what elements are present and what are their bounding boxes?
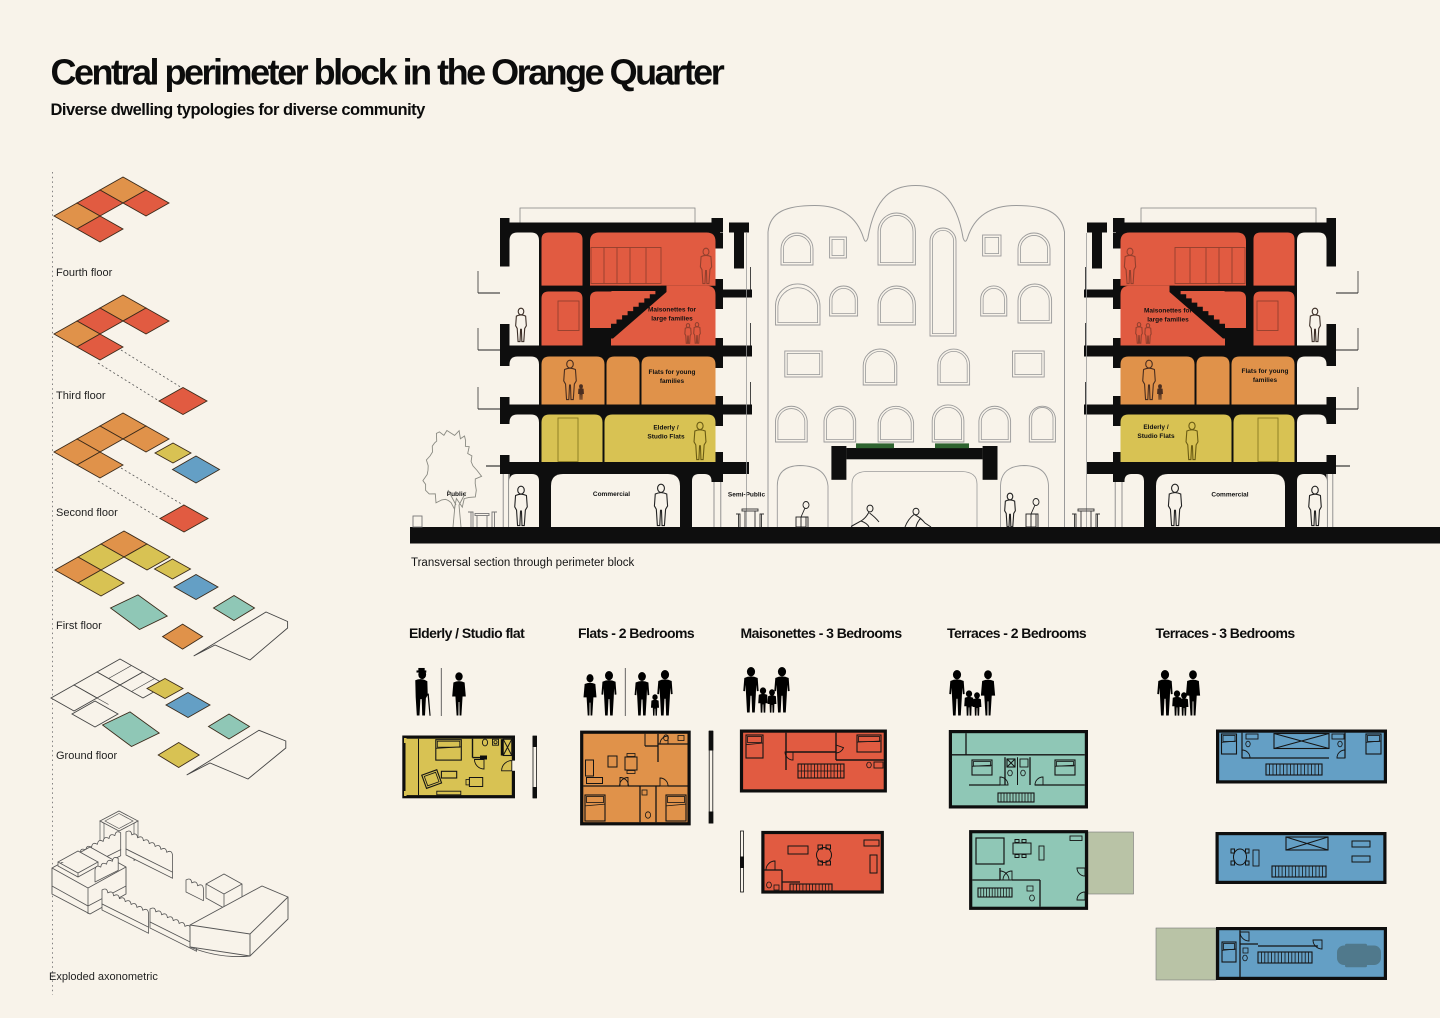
svg-text:Elderly /: Elderly / [653,425,678,432]
svg-text:Commercial: Commercial [1211,492,1248,499]
svg-text:Terraces - 2 Bedrooms: Terraces - 2 Bedrooms [947,625,1087,641]
svg-text:Third floor: Third floor [56,390,106,402]
svg-text:Studio Flats: Studio Flats [1137,433,1175,440]
svg-text:Transversal section through pe: Transversal section through perimeter bl… [411,557,635,569]
svg-text:Studio Flats: Studio Flats [647,434,685,441]
svg-text:Central perimeter block in the: Central perimeter block in the Orange Qu… [51,52,725,93]
svg-text:Ground floor: Ground floor [56,750,117,762]
svg-text:Maisonettes for: Maisonettes for [1144,308,1193,315]
svg-text:Terraces - 3 Bedrooms: Terraces - 3 Bedrooms [1156,625,1296,641]
svg-text:Commercial: Commercial [593,491,630,498]
svg-text:Maisonettes for: Maisonettes for [648,307,697,314]
svg-text:families: families [1253,377,1278,384]
svg-text:large families: large families [651,316,693,323]
svg-text:Flats for young: Flats for young [649,369,696,376]
svg-text:large families: large families [1147,317,1189,324]
svg-text:Flats - 2 Bedrooms: Flats - 2 Bedrooms [578,625,695,641]
svg-text:Second floor: Second floor [56,507,118,519]
svg-text:Exploded axonometric: Exploded axonometric [49,971,158,983]
svg-text:families: families [660,378,685,385]
svg-text:Flats for young: Flats for young [1242,368,1289,375]
svg-text:Diverse dwelling typologies fo: Diverse dwelling typologies for diverse … [51,101,427,119]
svg-text:Elderly / Studio flat: Elderly / Studio flat [409,625,525,641]
svg-text:Fourth floor: Fourth floor [56,267,113,279]
svg-text:Elderly /: Elderly / [1143,424,1168,431]
svg-text:Maisonettes - 3 Bedrooms: Maisonettes - 3 Bedrooms [741,625,903,641]
svg-text:First floor: First floor [56,620,102,632]
